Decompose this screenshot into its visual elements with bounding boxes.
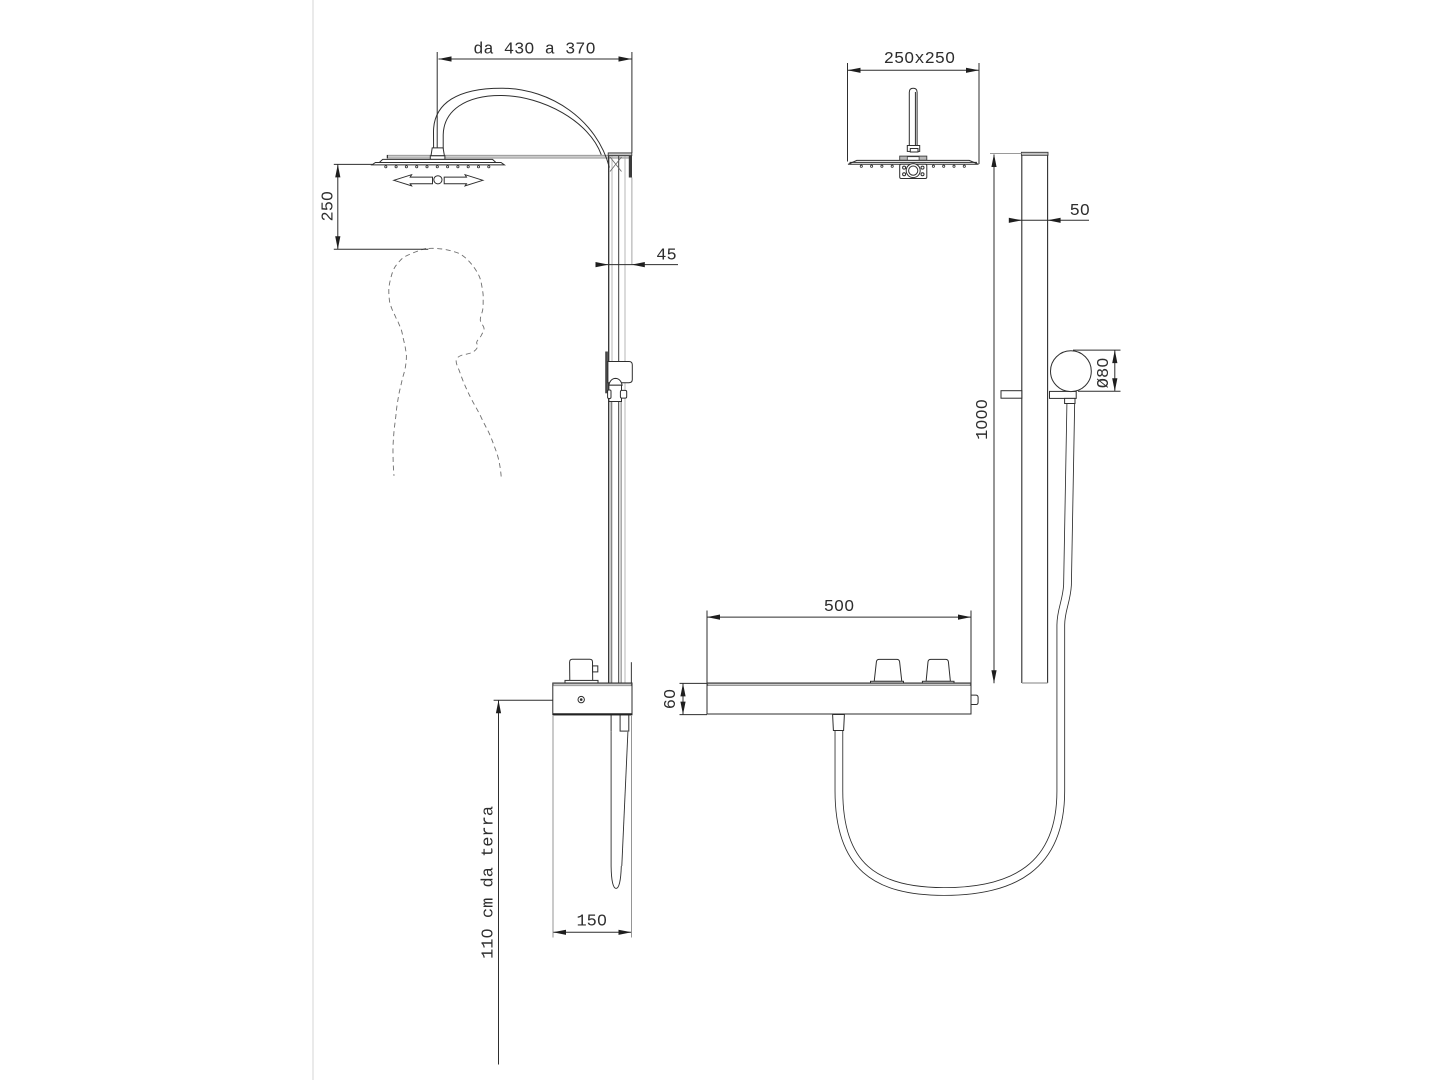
svg-text:250x250: 250x250 xyxy=(884,50,955,69)
svg-text:60: 60 xyxy=(662,689,681,709)
svg-text:250: 250 xyxy=(320,191,339,222)
svg-text:Ø80: Ø80 xyxy=(1095,358,1114,389)
svg-text:50: 50 xyxy=(1070,202,1090,221)
svg-text:1000: 1000 xyxy=(974,399,993,440)
svg-text:110 cm da terra: 110 cm da terra xyxy=(480,806,499,959)
svg-text:500: 500 xyxy=(824,598,855,617)
svg-text:da 430 a 370: da 430 a 370 xyxy=(473,41,595,60)
svg-text:45: 45 xyxy=(656,247,676,266)
svg-text:150: 150 xyxy=(576,913,607,932)
